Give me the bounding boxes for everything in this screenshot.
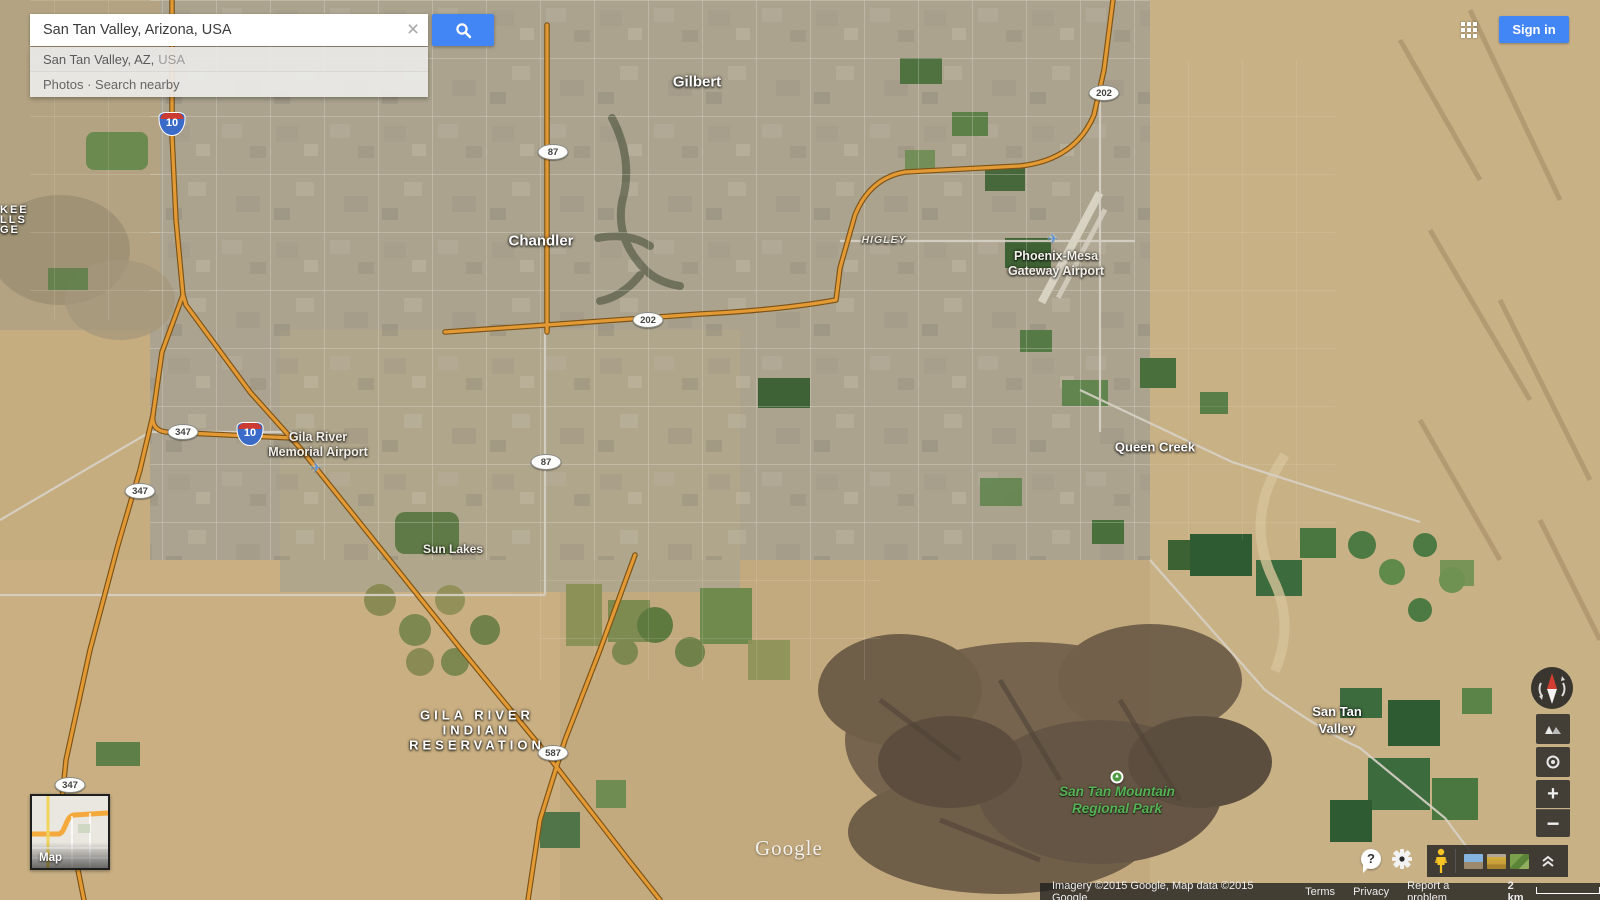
interstate-10-shield: 10 <box>237 422 264 446</box>
search-button[interactable] <box>432 14 494 46</box>
search-input[interactable] <box>30 22 398 38</box>
shield-number: 10 <box>237 427 264 446</box>
tilt-icon <box>1544 723 1562 735</box>
route-202-shield: 202 <box>633 312 664 328</box>
compass-control[interactable] <box>1530 666 1574 710</box>
map-mode-toggle[interactable]: Map <box>30 794 110 870</box>
divider <box>1455 849 1456 873</box>
suggestion-actions-label: Photos · Search nearby <box>43 77 180 92</box>
route-347-shield: 347 <box>125 483 156 499</box>
search-icon <box>455 22 472 39</box>
suggestion-secondary: USA <box>158 52 185 67</box>
sign-in-button[interactable]: Sign in <box>1499 16 1569 43</box>
help-button[interactable]: ? <box>1361 849 1381 869</box>
shield-number: 10 <box>159 117 186 136</box>
clear-search-icon[interactable]: × <box>398 14 428 46</box>
zoom-out-button[interactable]: − <box>1536 809 1570 837</box>
minimap-label: Map <box>39 852 62 864</box>
route-87-shield: 87 <box>531 454 562 470</box>
collapse-chevron-icon[interactable] <box>1540 854 1556 868</box>
route-587-shield: 587 <box>538 745 569 761</box>
google-maps-app: Gilbert Chandler HIGLEY ✈ Phoenix-Mesa G… <box>0 0 1600 900</box>
privacy-link[interactable]: Privacy <box>1353 886 1389 898</box>
imagery-attribution: Imagery ©2015 Google, Map data ©2015 Goo… <box>1052 880 1285 900</box>
scale-label: 2 km <box>1508 880 1532 900</box>
suggestion-actions-row[interactable]: Photos · Search nearby <box>30 72 428 97</box>
search-bar: × <box>30 14 494 46</box>
terrain-imagery-thumbnail[interactable] <box>1510 854 1529 869</box>
suggestion-primary: San Tan Valley, AZ, <box>43 52 154 67</box>
search-box: × <box>30 14 428 46</box>
satellite-map-canvas[interactable] <box>0 0 1600 900</box>
interstate-10-shield: 10 <box>159 112 186 136</box>
settings-gear-button[interactable] <box>1391 848 1413 870</box>
earth-view-thumbnail[interactable] <box>1464 854 1483 869</box>
zoom-in-button[interactable]: + <box>1536 780 1570 808</box>
tilt-45-imagery-button[interactable] <box>1536 714 1570 744</box>
route-202-shield: 202 <box>1089 85 1120 101</box>
search-suggestions: San Tan Valley, AZ, USA Photos · Search … <box>30 47 428 97</box>
map-scale: 2 km <box>1508 880 1600 900</box>
fields-imagery-thumbnail[interactable] <box>1487 854 1506 869</box>
route-347-shield: 347 <box>168 424 199 440</box>
attribution-bar: Imagery ©2015 Google, Map data ©2015 Goo… <box>1040 883 1600 900</box>
imagery-bar <box>1427 845 1568 877</box>
route-87-shield: 87 <box>538 144 569 160</box>
pegman-street-view[interactable] <box>1433 848 1449 874</box>
my-location-button[interactable] <box>1536 747 1570 777</box>
terms-link[interactable]: Terms <box>1305 886 1335 898</box>
my-location-icon <box>1544 753 1562 771</box>
apps-grid-icon[interactable] <box>1461 22 1477 38</box>
report-problem-link[interactable]: Report a problem <box>1407 880 1490 900</box>
scale-bar <box>1536 887 1600 894</box>
suggestion-item[interactable]: San Tan Valley, AZ, USA <box>30 47 428 72</box>
route-347-shield: 347 <box>55 777 86 793</box>
